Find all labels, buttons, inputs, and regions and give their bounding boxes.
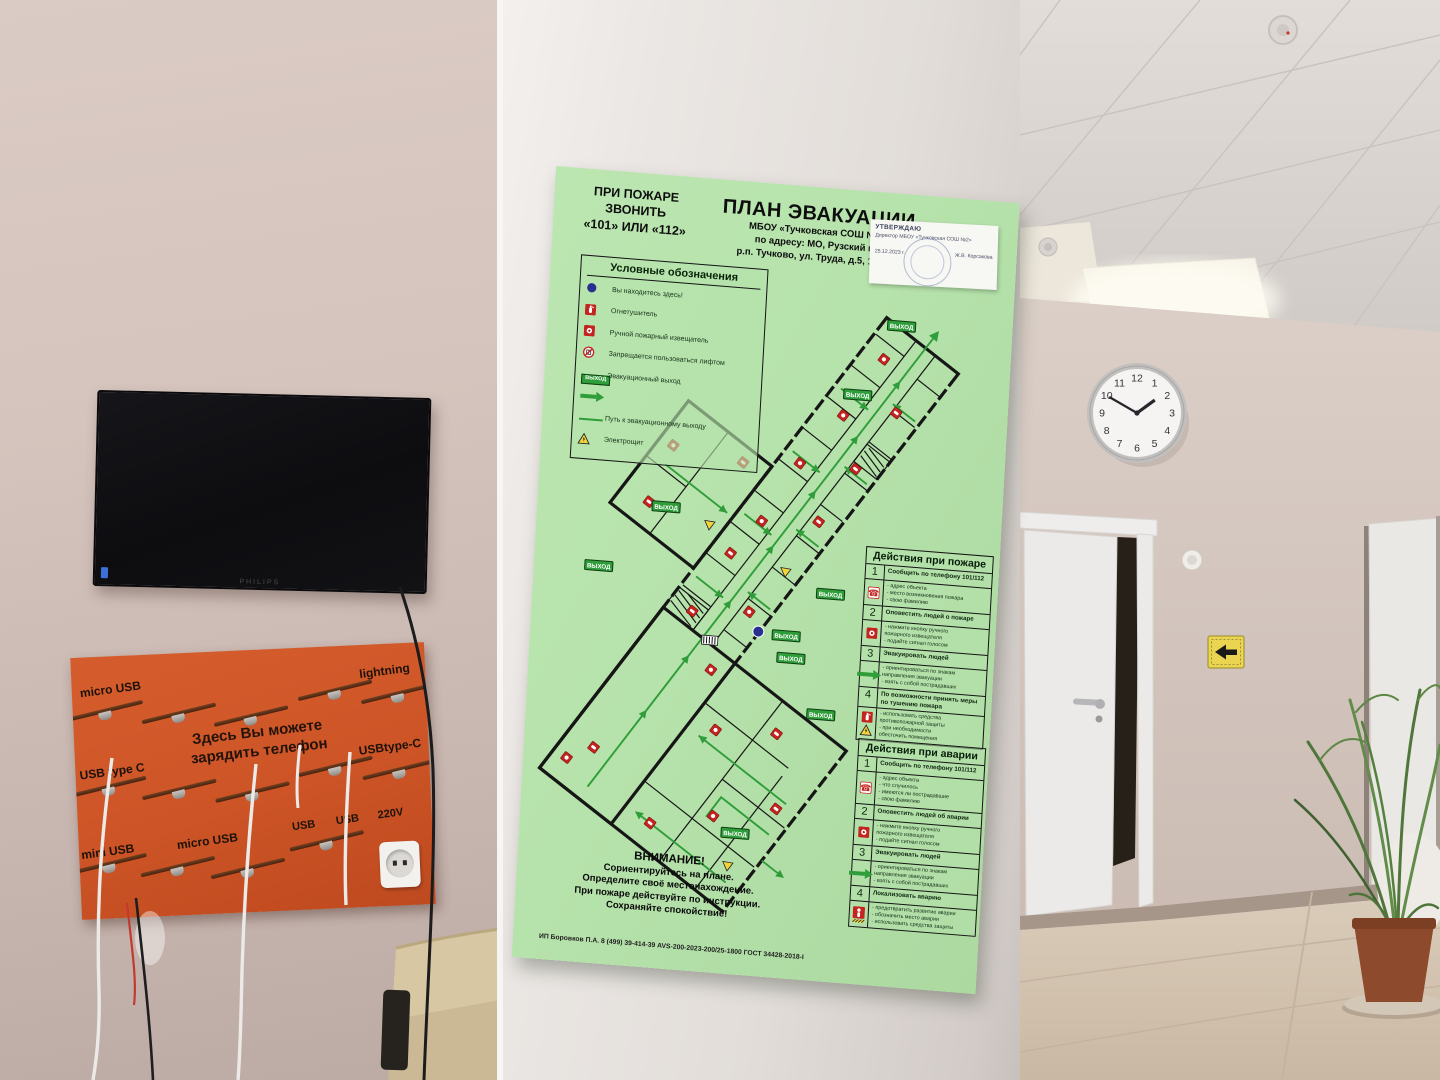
extinguisher-marker — [587, 741, 600, 754]
call-point-marker — [794, 457, 807, 470]
you-are-here-icon — [586, 282, 598, 294]
legend-item-label: Ручной пожарный извещатель — [609, 330, 757, 350]
route-line-icon — [579, 416, 603, 424]
no-elevator-icon — [582, 345, 595, 358]
exit-badge: ВЫХОД — [585, 559, 613, 571]
legend-item-label: Путь к эвакуационному выходу — [605, 416, 753, 436]
legend-item-label — [606, 398, 754, 410]
red-wire — [127, 903, 135, 1005]
exit-badge: ВЫХОД — [777, 652, 805, 664]
exit-badge: ВЫХОД — [816, 588, 844, 600]
step-number: 1 — [865, 564, 885, 580]
step-number: 2 — [855, 804, 875, 820]
exit-badge: ВЫХОД — [887, 320, 915, 332]
svg-text:☎: ☎ — [868, 587, 880, 598]
manual-call-point-icon — [858, 826, 870, 838]
electrical-panel-icon — [860, 724, 873, 736]
phone-icon: ☎ — [867, 586, 880, 599]
you-are-here-dot — [753, 626, 765, 638]
exit-badge: ВЫХОД — [843, 389, 871, 401]
call-point-marker — [705, 663, 718, 676]
legend-item-label: Электрощит — [603, 437, 751, 457]
hallway-photo: PHILIPS Здесь Вы можете зарядить телефон… — [0, 0, 1440, 1080]
electrical-panel-marker — [778, 564, 791, 577]
exit-badge: ВЫХОД — [721, 827, 749, 839]
manual-call-point-icon — [866, 627, 878, 639]
extinguisher-marker — [890, 407, 903, 420]
evacuation-plan-poster: ВЫХОДВЫХОДВЫХОДВЫХОДВЫХОДВЫХОДВЫХОДВЫХОД… — [512, 166, 1020, 994]
plan-barcode — [702, 635, 718, 645]
hallway-right: 121234567891011 — [1020, 0, 1440, 1080]
fire-extinguisher-icon — [585, 303, 597, 315]
svg-text:12: 12 — [1131, 373, 1143, 385]
exit-badge: ВЫХОД — [807, 709, 835, 721]
svg-text:☎: ☎ — [860, 783, 872, 794]
exit-badge: ВЫХОД — [772, 630, 800, 642]
left-wall-overlay — [0, 0, 500, 1080]
usb-cable-white-1 — [93, 758, 112, 1080]
manual-call-point-icon — [584, 325, 596, 337]
step-number: 4 — [858, 687, 878, 707]
wall-sensor — [1182, 550, 1202, 570]
phone-icon: ☎ — [859, 781, 872, 794]
svg-text:3: 3 — [1169, 408, 1175, 420]
fire-extinguisher-icon — [861, 711, 873, 723]
stamp-date: 25.12.2023 г. — [875, 248, 905, 256]
direction-arrow-sign — [1208, 636, 1244, 668]
person-hazard-icon — [852, 906, 865, 923]
legend-item-label: Запрещается пользоваться лифтом — [608, 351, 756, 371]
door-leaf — [1024, 530, 1117, 916]
round-stamp-icon — [903, 237, 952, 288]
route-arrow-icon — [857, 668, 881, 680]
usb-cable-white-3 — [345, 752, 350, 905]
svg-text:8: 8 — [1104, 425, 1110, 437]
step-number: 4 — [850, 886, 870, 902]
svg-text:9: 9 — [1099, 408, 1105, 420]
call-point-marker — [755, 515, 768, 528]
left-wall: PHILIPS Здесь Вы можете зарядить телефон… — [0, 0, 500, 1080]
legend: Условные обозначения Вы находитесь здесь… — [570, 254, 769, 473]
extinguisher-marker — [724, 547, 737, 560]
electrical-panel-icon — [578, 432, 591, 444]
stamp-signature: Ж.В. Корсакова — [955, 253, 993, 261]
electrical-panel-marker — [702, 516, 715, 529]
call-point-marker — [709, 724, 722, 737]
step-number: 3 — [853, 845, 873, 861]
svg-text:6: 6 — [1134, 443, 1140, 455]
call-point-marker — [707, 810, 720, 823]
doorway-gap — [1113, 537, 1139, 866]
accident-actions-panel: Действия при аварии1Сообщить по телефону… — [848, 738, 986, 937]
extinguisher-marker — [770, 803, 783, 816]
call-point-marker — [837, 409, 850, 422]
exit-sign-icon: ВЫХОД — [581, 374, 610, 386]
extinguisher-marker — [812, 515, 825, 528]
plant-pot — [1354, 924, 1434, 1002]
approval-stamp: УТВЕРЖДАЮ Директор МБОУ «Тучковская СОШ … — [869, 219, 999, 290]
svg-text:11: 11 — [1114, 377, 1125, 389]
legend-item-label: Огнетушитель — [611, 308, 759, 328]
exit-badge: ВЫХОД — [652, 501, 680, 513]
legend-items: Вы находитесь здесь!ОгнетушительРучной п… — [577, 280, 760, 462]
step-number: 1 — [858, 756, 878, 772]
svg-text:1: 1 — [1152, 377, 1158, 389]
legend-item-label: Эвакуационный выход — [607, 373, 755, 393]
usb-cable-white-2 — [238, 764, 256, 1080]
trash-bin — [381, 990, 411, 1071]
door-jamb — [1137, 534, 1153, 907]
call-point-marker — [878, 353, 891, 366]
route-arrow-icon — [849, 867, 873, 879]
svg-text:4: 4 — [1164, 425, 1170, 437]
extinguisher-marker — [686, 605, 699, 618]
legend-item-label: Вы находитесь здесь! — [612, 287, 760, 307]
call-point-marker — [560, 751, 573, 764]
route-arrow-icon — [580, 390, 604, 402]
call-point-marker — [743, 606, 756, 619]
svg-text:7: 7 — [1117, 438, 1123, 450]
fire-actions-panel: Действия при пожаре1Сообщить по телефону… — [855, 546, 993, 750]
extinguisher-marker — [770, 728, 783, 741]
step-number: 3 — [861, 646, 881, 662]
step-number: 2 — [863, 605, 883, 621]
svg-text:10: 10 — [1101, 390, 1113, 402]
usb-cable-white-4 — [297, 745, 300, 808]
svg-text:5: 5 — [1152, 438, 1158, 450]
svg-text:2: 2 — [1164, 390, 1170, 402]
